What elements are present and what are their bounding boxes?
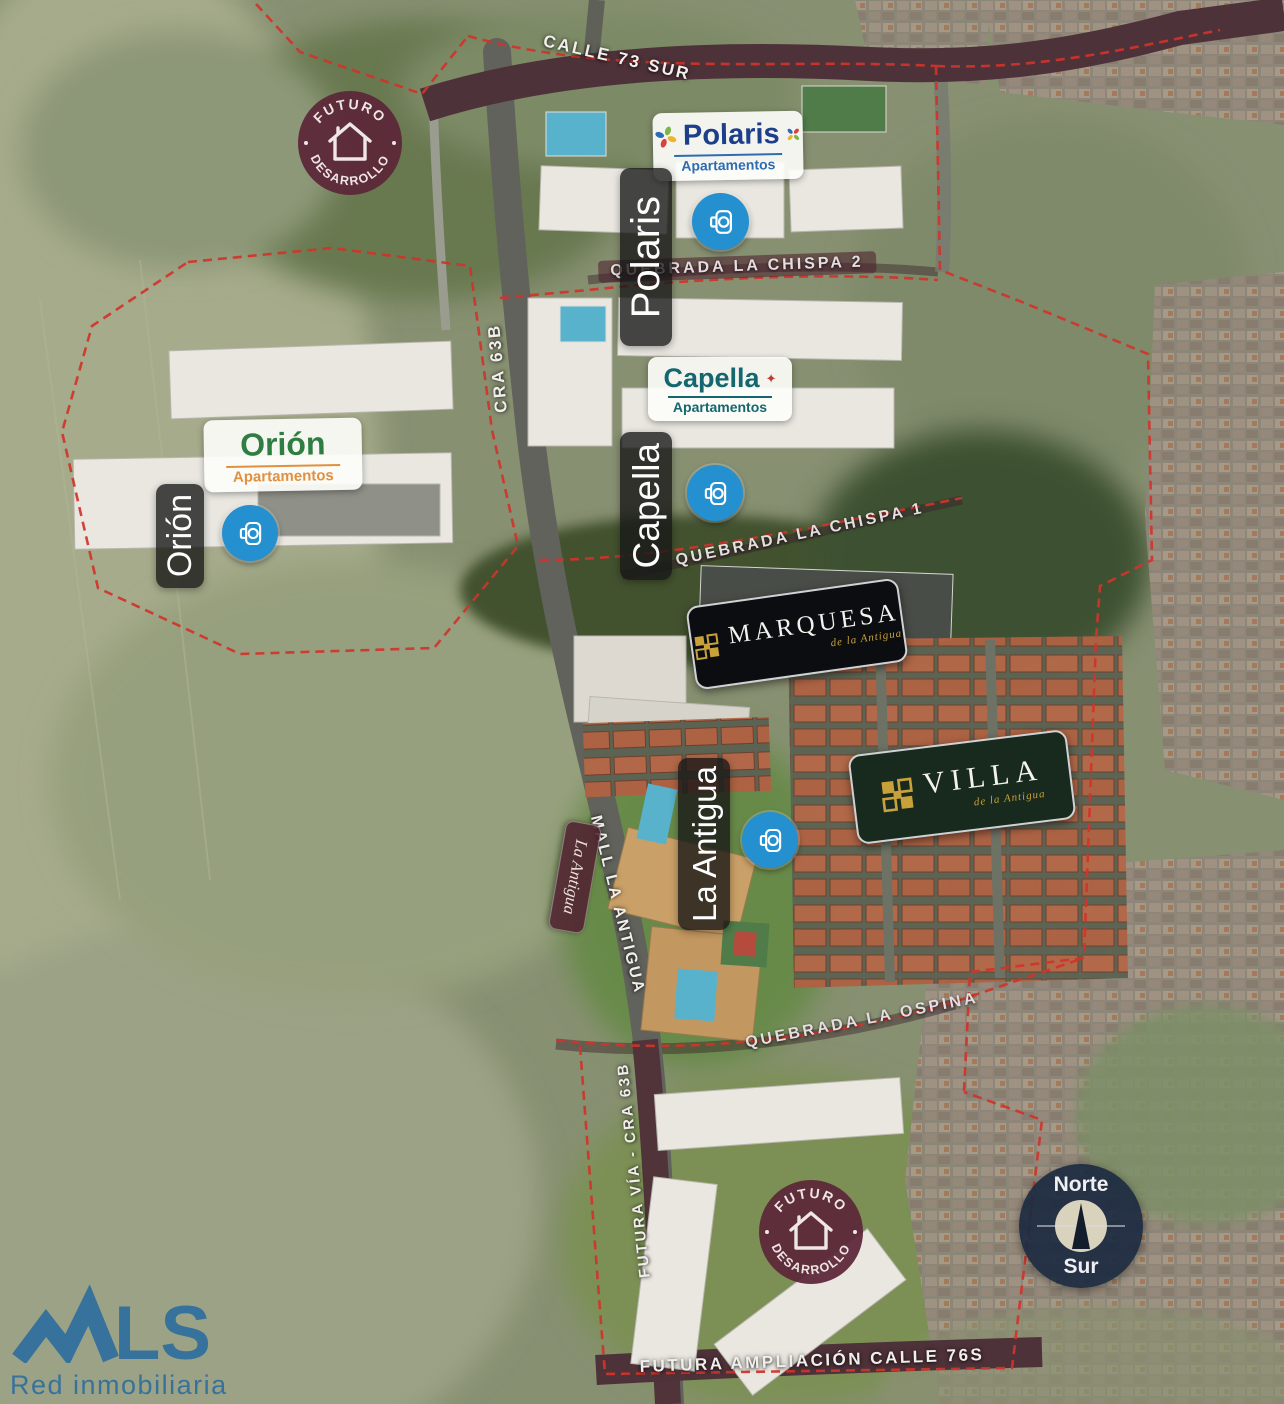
compass: Norte Sur [1019,1164,1143,1288]
camera-icon [753,823,788,858]
capella-rule [668,396,772,398]
photo-tag-la-antigua: La Antigua [678,758,730,930]
camera-button-orion[interactable] [222,505,278,561]
photo-tag-capella: Capella [620,432,672,580]
photo-tag-capella-text: Capella [628,443,665,568]
photo-tag-polaris-text: Polaris [626,196,666,318]
camera-button-capella[interactable] [687,465,743,521]
mls-logo-mark: LS [10,1283,222,1363]
masterplan-map: CALLE 73 SUR CRA 63B QUEBRADA LA CHISPA … [0,0,1284,1404]
photo-tag-polaris: Polaris [620,168,672,346]
photo-tag-orion: Orión [156,484,204,588]
villa-ornament-icon [879,776,917,814]
orion-name: Orión [240,425,326,463]
photo-tag-la-antigua-text: La Antigua [688,766,721,922]
polaris-name: Polaris [683,118,780,153]
polaris-pinwheel-icon-small [786,127,801,142]
camera-button-la-antigua[interactable] [742,812,798,868]
capella-name: Capella [664,363,760,394]
project-sign-orion: Orión Apartamentos [203,418,362,493]
futuro-desarrollo-badge-top: FUTURO DESARROLLO [297,90,403,201]
polaris-subtitle: Apartamentos [681,156,775,174]
camera-icon [703,204,739,240]
photo-tag-orion-text: Orión [163,494,197,577]
compass-south-label: Sur [1063,1255,1098,1279]
compass-needle-icon [1072,1203,1090,1249]
camera-icon [698,476,733,511]
compass-north-label: Norte [1054,1173,1109,1197]
compass-dial [1055,1200,1107,1252]
capella-subtitle: Apartamentos [673,399,767,415]
capella-star-icon: ✦ [766,371,777,387]
camera-button-polaris[interactable] [692,193,749,250]
mls-logo: LS Red inmobiliaria [10,1283,228,1401]
marquesa-ornament-icon [692,632,721,661]
polaris-pinwheel-icon [655,125,677,147]
camera-icon [233,516,268,551]
project-sign-polaris: Polaris Apartamentos [652,111,803,182]
orion-subtitle: Apartamentos [233,467,334,486]
mls-logo-tagline: Red inmobiliaria [10,1370,228,1401]
project-sign-capella: Capella ✦ Apartamentos [648,357,792,421]
mall-sign-text: La Antigua [560,838,592,916]
futuro-desarrollo-badge-bottom: FUTURO DESARROLLO [758,1179,864,1290]
svg-text:LS: LS [114,1291,211,1363]
